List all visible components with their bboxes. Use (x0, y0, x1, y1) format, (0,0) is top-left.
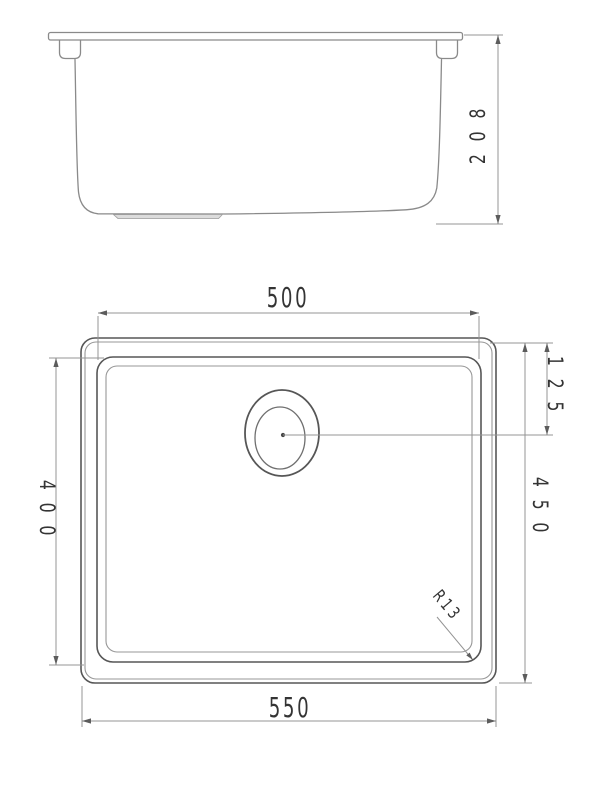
arrowhead-right (487, 718, 496, 723)
arrowhead-left (82, 718, 91, 723)
dim-overall-width: 550 (82, 686, 496, 727)
dim-label-overall-depth: 450 (527, 477, 551, 545)
drawing-canvas: 208 500 (0, 0, 606, 800)
mounting-clip-right (437, 41, 458, 59)
arrowhead-down (522, 674, 527, 683)
arrowhead-down (495, 215, 500, 224)
dim-label-bowl-width: 500 (267, 281, 310, 314)
drain-recess-pad (114, 214, 223, 218)
dim-label-height: 208 (467, 96, 491, 164)
rim-bar (49, 33, 463, 41)
bowl-outline-outer (97, 357, 481, 662)
dim-bowl-width: 500 (98, 281, 479, 360)
arrowhead-up (522, 343, 527, 352)
arrowhead-up (53, 358, 58, 367)
drain (245, 390, 553, 476)
arrowhead-down (53, 656, 58, 665)
dim-label-drain-offset: 125 (542, 356, 566, 424)
dim-label-bowl-depth: 400 (34, 480, 58, 548)
arrowhead-up (495, 35, 500, 44)
drain-hole-circle (255, 407, 305, 469)
side-view: 208 (49, 33, 504, 225)
mounting-clip-left (60, 41, 81, 59)
sink-technical-drawing: 208 500 (0, 0, 606, 800)
corner-radius-label: R13 (429, 586, 467, 625)
corner-radius-callout: R13 (429, 586, 473, 660)
dim-height: 208 (436, 35, 503, 224)
drain-flange-circle (245, 390, 319, 476)
dim-bowl-depth: 400 (34, 358, 104, 665)
arrowhead-down (544, 426, 549, 435)
arrowhead-right (470, 310, 479, 315)
dim-label-overall-width: 550 (269, 691, 312, 724)
top-view: 500 550 400 450 (34, 281, 566, 727)
radius-leader-line (437, 617, 472, 659)
rim-outline-inner (85, 342, 492, 679)
arrowhead-left (98, 310, 107, 315)
arrowhead-up (544, 343, 549, 352)
bowl-body-outline (75, 60, 442, 215)
dim-drain-offset: 125 (542, 343, 566, 435)
